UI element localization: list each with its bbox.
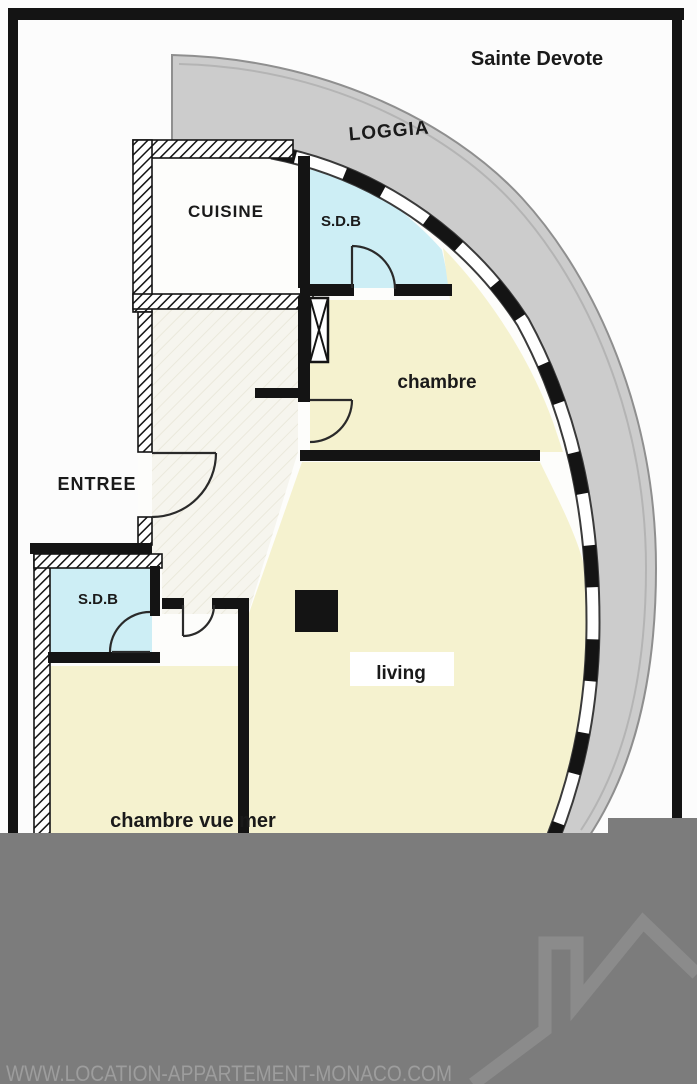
- wall-segment: [298, 156, 310, 288]
- wall-corridor-left-upper: [138, 312, 152, 452]
- label-living: living: [376, 663, 426, 684]
- frame-left-border: [8, 8, 18, 834]
- room-living: [248, 462, 592, 836]
- wall-kitchen-top: [133, 140, 293, 158]
- watermark-url-text: WWW.LOCATION-APPARTEMENT-MONACO.COM: [6, 1061, 452, 1084]
- wall-segment: [150, 566, 160, 616]
- living-black-square: [295, 590, 338, 632]
- room-sdb-bottom: [50, 568, 152, 656]
- label-chambre: chambre: [397, 372, 476, 393]
- label-sdb-bottom: S.D.B: [78, 591, 118, 608]
- wall-segment: [162, 598, 184, 609]
- floor-plan-screenshot: Sainte Devote LOGGIA CUISINE S.D.B chamb…: [0, 0, 697, 1084]
- wall-segment: [30, 543, 152, 554]
- wall-segment: [48, 652, 160, 663]
- floor-plan-svg: Sainte Devote LOGGIA CUISINE S.D.B chamb…: [0, 0, 697, 1084]
- wall-segment: [238, 598, 249, 836]
- label-cuisine: CUISINE: [188, 202, 264, 221]
- wall-kitchen-left: [133, 140, 152, 312]
- frame-right-border: [672, 8, 682, 820]
- wall-segment: [255, 388, 301, 398]
- wall-segment: [212, 598, 242, 609]
- label-chambre-vue-mer: chambre vue mer: [110, 810, 276, 832]
- wall-corridor-left-lower: [138, 517, 152, 545]
- closet-symbol: [310, 298, 328, 362]
- wall-segment: [300, 450, 540, 461]
- label-sainte-devote: Sainte Devote: [471, 48, 603, 70]
- label-sdb-top: S.D.B: [321, 213, 361, 230]
- label-entree: ENTREE: [57, 474, 136, 494]
- frame-top-border: [8, 8, 684, 20]
- wall-segment: [298, 296, 310, 402]
- wall-kitchen-bottom: [133, 294, 313, 309]
- bottom-overlay-band: [0, 818, 697, 1084]
- wall-block-left: [34, 554, 50, 838]
- wall-segment: [394, 284, 452, 296]
- wall-block-top: [34, 554, 162, 568]
